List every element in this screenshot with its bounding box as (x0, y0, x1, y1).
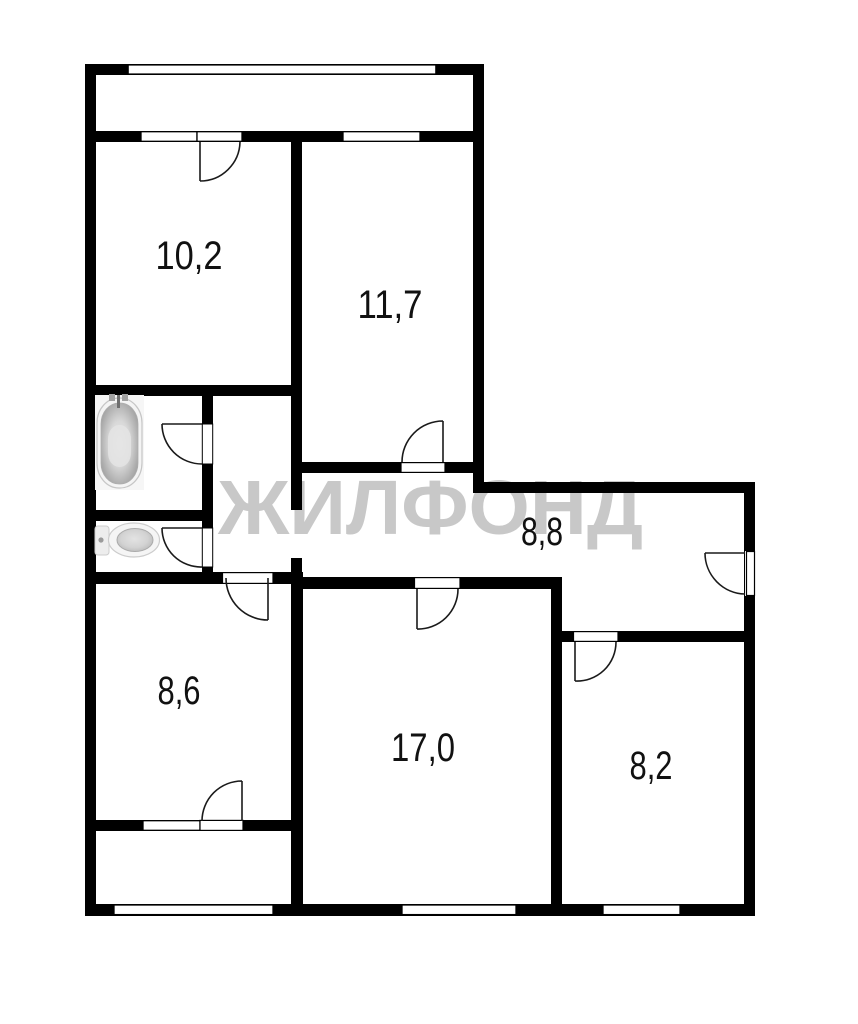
svg-text:10,2: 10,2 (156, 234, 223, 278)
svg-text:11,7: 11,7 (358, 283, 423, 327)
svg-text:ЖИЛФОНД: ЖИЛФОНД (217, 465, 643, 551)
svg-text:17,0: 17,0 (391, 726, 455, 770)
svg-text:8,6: 8,6 (158, 669, 201, 713)
svg-text:8,8: 8,8 (521, 510, 563, 554)
svg-text:8,2: 8,2 (630, 744, 673, 788)
